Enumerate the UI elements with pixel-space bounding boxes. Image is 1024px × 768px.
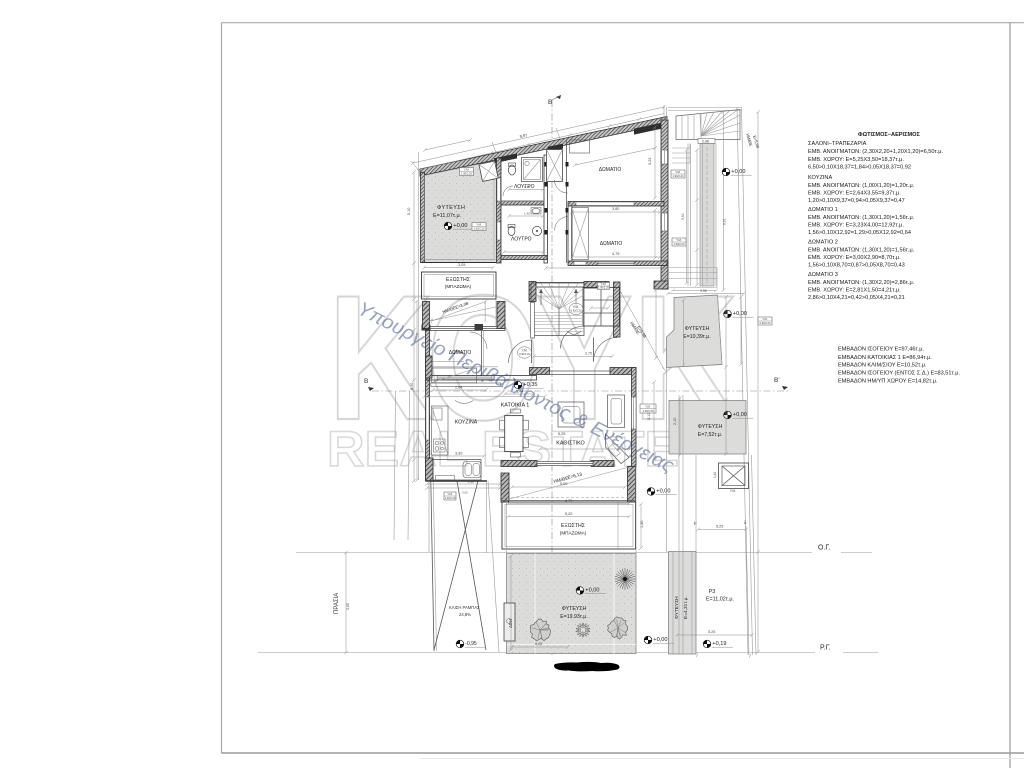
svg-text:Υ.Μ.: Υ.Μ. [730, 489, 736, 493]
svg-text:5,00: 5,00 [560, 482, 567, 486]
svg-text:Ρ3: Ρ3 [709, 589, 716, 595]
svg-text:1,44: 1,44 [516, 390, 523, 394]
svg-text:ΔΩΜΑΤΙΟ 1: ΔΩΜΑΤΙΟ 1 [808, 207, 838, 213]
svg-text:Β': Β' [774, 377, 780, 384]
svg-text:ΔΩΜΑΤΙΟ 3: ΔΩΜΑΤΙΟ 3 [808, 272, 838, 278]
svg-text:8,61: 8,61 [723, 218, 727, 225]
svg-text:1.90/2.20: 1.90/2.20 [461, 171, 472, 175]
svg-text:ΚΛΙΣΗ ΡΑΜΠΑΣ: ΚΛΙΣΗ ΡΑΜΠΑΣ [449, 605, 480, 610]
svg-text:ΔΩΜΑΤΙΟ: ΔΩΜΑΤΙΟ [449, 350, 472, 356]
svg-text:Υ.Μ.: Υ.Μ. [447, 492, 453, 496]
svg-text:ΦΥΤΕΥΣΗ: ΦΥΤΕΥΣΗ [698, 424, 723, 430]
svg-text:ΕΜΒΑΔΟΝ ΗΜ/ΥΠ ΧΩΡΟΥ Ε=14,82τ.μ: ΕΜΒΑΔΟΝ ΗΜ/ΥΠ ΧΩΡΟΥ Ε=14,82τ.μ. [838, 379, 938, 385]
svg-text:+0,00: +0,00 [656, 489, 670, 495]
svg-text:ΚΟΥΖΙΝΑ: ΚΟΥΖΙΝΑ [455, 420, 478, 426]
svg-text:ΕΜΒ. ΧΩΡΟΥ: Ε=5,25Χ3,50=18,37τ: ΕΜΒ. ΧΩΡΟΥ: Ε=5,25Χ3,50=18,37τ.μ. [808, 157, 904, 163]
svg-text:ΣΑΛΟΝΙ−ΤΡΑΠΕΖΑΡΙΑ: ΣΑΛΟΝΙ−ΤΡΑΠΕΖΑΡΙΑ [808, 141, 867, 147]
svg-text:ΕΜΒ. ΧΩΡΟΥ: Ε=3,00Χ2,90=8,70τ.: ΕΜΒ. ΧΩΡΟΥ: Ε=3,00Χ2,90=8,70τ.μ. [808, 255, 901, 261]
svg-text:3,30: 3,30 [455, 452, 462, 456]
svg-text:ΕΜΒ. ΧΩΡΟΥ: Ε=2,64Χ3,55=9,37τ.: ΕΜΒ. ΧΩΡΟΥ: Ε=2,64Χ3,55=9,37τ.μ. [808, 191, 901, 197]
svg-text:Υ.Μ.: Υ.Μ. [573, 305, 579, 309]
svg-text:ΕΜΒΑΔΟΝ ΙΣΟΓΕΙΟΥ Ε=97,46τ.μ.: ΕΜΒΑΔΟΝ ΙΣΟΓΕΙΟΥ Ε=97,46τ.μ. [838, 347, 924, 353]
svg-text:ΔΩΜΑΤΙΟ: ΔΩΜΑΤΙΟ [600, 241, 623, 247]
svg-text:3,98: 3,98 [700, 289, 707, 293]
svg-text:ΕΜΒ. ΧΩΡΟΥ: Ε=3,23Χ4,00=12,92τ: ΕΜΒ. ΧΩΡΟΥ: Ε=3,23Χ4,00=12,92τ.μ. [808, 223, 904, 229]
svg-text:3,12: 3,12 [647, 413, 651, 420]
svg-text:1.90/2.20: 1.90/2.20 [474, 226, 485, 230]
svg-text:-0,95: -0,95 [465, 641, 477, 647]
svg-text:Ρ.Γ.: Ρ.Γ. [820, 645, 831, 652]
svg-text:Υ.Μ.: Υ.Μ. [521, 349, 527, 353]
svg-text:6,50>0,10Χ18,37=1,84>0,05Χ18,3: 6,50>0,10Χ18,37=1,84>0,05Χ18,37=0,92 [808, 165, 911, 171]
svg-text:1,45: 1,45 [524, 212, 530, 216]
svg-text:ΠΡΑΣΙΑ: ΠΡΑΣΙΑ [334, 593, 340, 614]
svg-text:3,05: 3,05 [458, 263, 465, 267]
svg-text:2,10: 2,10 [673, 418, 677, 425]
svg-text:24,8%: 24,8% [459, 612, 471, 617]
svg-text:ΦΥΤΕΥΣΗ: ΦΥΤΕΥΣΗ [437, 205, 465, 211]
svg-text:0.90/2.20: 0.90/2.20 [571, 309, 582, 313]
svg-text:ΕΞΩΣΤΗΣ: ΕΞΩΣΤΗΣ [561, 523, 585, 529]
svg-text:Υ.Μ.: Υ.Μ. [675, 170, 681, 174]
svg-text:3,23: 3,23 [648, 158, 652, 165]
svg-text:ΕΜΒ. ΑΝΟΙΓΜΑΤΩΝ: (1,00Χ1,20)=1: ΕΜΒ. ΑΝΟΙΓΜΑΤΩΝ: (1,00Χ1,20)=1,20τ.μ. [808, 183, 915, 189]
svg-text:2.30/2.20: 2.30/2.20 [643, 409, 654, 413]
svg-text:ΛΟΥΤΡΟ: ΛΟΥΤΡΟ [511, 237, 532, 243]
svg-text:ΕΜΒΑΔΟΝ ΚΛΙΜ/ΣΙΟΥ Ε=10,52τ.μ.: ΕΜΒΑΔΟΝ ΚΛΙΜ/ΣΙΟΥ Ε=10,52τ.μ. [838, 363, 927, 369]
svg-text:ΕΜΒΑΔΟΝ ΚΑΤΟΙΚΙΑΣ 1 Ε=86,94τ.μ: ΕΜΒΑΔΟΝ ΚΑΤΟΙΚΙΑΣ 1 Ε=86,94τ.μ. [838, 355, 932, 361]
svg-text:4,75: 4,75 [565, 499, 572, 503]
svg-text:2,96: 2,96 [702, 140, 709, 144]
svg-text:ΦΩΤΙΣΜΟΣ−ΑΕΡΙΣΜΟΣ: ΦΩΤΙΣΜΟΣ−ΑΕΡΙΣΜΟΣ [858, 132, 920, 138]
svg-text:1.90/2.20: 1.90/2.20 [674, 242, 685, 246]
svg-text:1,56>0,10Χ8,70=0,87>0,05Χ8,70=: 1,56>0,10Χ8,70=0,87>0,05Χ8,70=0,43 [808, 263, 905, 269]
svg-text:2,86>0,10Χ4,21=0,42>0,05Χ4,21=: 2,86>0,10Χ4,21=0,42>0,05Χ4,21=0,21 [808, 295, 905, 301]
svg-text:0.90/2.20: 0.90/2.20 [519, 352, 530, 356]
svg-text:1.90/2.20: 1.90/2.20 [673, 174, 684, 178]
svg-text:ΕΜΒΑΔΟΝ ΙΣΟΓΕΙΟΥ (ΕΝΤΟΣ Σ.Δ.): ΕΜΒΑΔΟΝ ΙΣΟΓΕΙΟΥ (ΕΝΤΟΣ Σ.Δ.) Ε=83,51τ.μ… [838, 371, 961, 377]
svg-text:5,05: 5,05 [535, 642, 542, 646]
svg-text:3,75: 3,75 [585, 352, 592, 356]
svg-text:Υ.Μ.: Υ.Μ. [762, 317, 768, 321]
svg-text:ΔΩΜΑΤΙΟ: ΔΩΜΑΤΙΟ [599, 167, 622, 173]
svg-text:(ΜΠΑΖΩΜΑ): (ΜΠΑΖΩΜΑ) [560, 531, 587, 536]
svg-text:1,20>0,10Χ9,37=0,94>0,05Χ9,37=: 1,20>0,10Χ9,37=0,94>0,05Χ9,37=0,47 [808, 198, 905, 204]
svg-text:ΕΜΒ. ΧΩΡΟΥ: Ε=2,81Χ1,50=4,21τ.: ΕΜΒ. ΧΩΡΟΥ: Ε=2,81Χ1,50=4,21τ.μ. [808, 288, 901, 294]
svg-text:ΕΞΩΣΤΗΣ: ΕΞΩΣΤΗΣ [446, 277, 470, 283]
svg-text:Ο.Γ.: Ο.Γ. [818, 545, 830, 552]
svg-text:+0,00: +0,00 [733, 311, 747, 317]
svg-text:ΔΩΜΑΤΙΟ 2: ΔΩΜΑΤΙΟ 2 [808, 240, 838, 246]
svg-text:Υ.Μ.: Υ.Μ. [645, 405, 651, 409]
svg-text:1.20/2.20: 1.20/2.20 [445, 496, 456, 500]
svg-text:+0,00: +0,00 [733, 412, 747, 418]
svg-text:5,60: 5,60 [681, 213, 685, 220]
svg-text:2,64: 2,64 [455, 386, 462, 390]
svg-text:ΕΜΒ. ΑΝΟΙΓΜΑΤΩΝ: (1,30Χ2,20)=2: ΕΜΒ. ΑΝΟΙΓΜΑΤΩΝ: (1,30Χ2,20)=2,86τ.μ. [808, 280, 915, 286]
svg-text:+0,35: +0,35 [523, 382, 537, 388]
svg-text:ΚΑΘΙΣΤΙΚΟ: ΚΑΘΙΣΤΙΚΟ [556, 441, 585, 447]
svg-text:1.90/2.20: 1.90/2.20 [598, 285, 609, 289]
svg-text:ΚΑΤΟΙΚΙΑ 1: ΚΑΤΟΙΚΙΑ 1 [501, 403, 530, 409]
svg-text:ΕΜΒ. ΑΝΟΙΓΜΑΤΩΝ: (1,30Χ1,20)=1: ΕΜΒ. ΑΝΟΙΓΜΑΤΩΝ: (1,30Χ1,20)=1,56τ.μ. [808, 215, 915, 221]
svg-text:+0,00: +0,00 [453, 223, 467, 229]
svg-text:0.90/2.20: 0.90/2.20 [760, 321, 771, 325]
svg-text:1,56>0,10Χ12,92=1,29>0,05Χ12,9: 1,56>0,10Χ12,92=1,29>0,05Χ12,92=0,64 [808, 230, 911, 236]
svg-text:3,05: 3,05 [462, 491, 468, 495]
svg-text:ΛΟΥΤΡΟ: ΛΟΥΤΡΟ [514, 184, 535, 190]
svg-text:5,25: 5,25 [708, 630, 715, 634]
svg-text:ΦΥΤΕΥΣΗ: ΦΥΤΕΥΣΗ [685, 326, 710, 332]
svg-text:5,25: 5,25 [716, 525, 723, 529]
svg-text:+0,00: +0,00 [585, 588, 599, 594]
svg-text:Ε=19,93τ.μ.: Ε=19,93τ.μ. [560, 614, 587, 620]
svg-text:+0,19: +0,19 [712, 641, 726, 647]
svg-text:1,30: 1,30 [640, 521, 644, 528]
svg-text:ΚΟΥΖΙΝΑ: ΚΟΥΖΙΝΑ [808, 175, 832, 181]
svg-text:8,10: 8,10 [410, 383, 414, 390]
svg-text:Ε=4,31τ.μ.: Ε=4,31τ.μ. [683, 596, 689, 619]
svg-text:Υ.Μ.: Υ.Μ. [476, 223, 482, 227]
svg-text:Β: Β [364, 378, 368, 385]
svg-text:(ΜΠΑΖΩΜΑ): (ΜΠΑΖΩΜΑ) [445, 284, 472, 289]
svg-text:Ε=7,52τ.μ.: Ε=7,52τ.μ. [698, 432, 723, 438]
svg-text:ΕΜΒ. ΑΝΟΙΓΜΑΤΩΝ: (2,30Χ2,20+1,: ΕΜΒ. ΑΝΟΙΓΜΑΤΩΝ: (2,30Χ2,20+1,20Χ1,20)=6… [808, 149, 943, 155]
svg-text:Β: Β [548, 99, 552, 106]
svg-text:5,10: 5,10 [407, 208, 411, 215]
svg-text:ΕΜΒ. ΑΝΟΙΓΜΑΤΩΝ: (1,30Χ1,20)=1: ΕΜΒ. ΑΝΟΙΓΜΑΤΩΝ: (1,30Χ1,20)=1,56τ.μ. [808, 248, 915, 254]
svg-text:4,75: 4,75 [612, 252, 619, 256]
svg-text:5,20: 5,20 [565, 512, 572, 516]
svg-text:ΦΥΤΕΥΣΗ: ΦΥΤΕΥΣΗ [562, 606, 587, 612]
svg-text:+0,00: +0,00 [731, 169, 745, 175]
svg-text:Ε=11,07τ.μ.: Ε=11,07τ.μ. [433, 213, 461, 219]
svg-text:+0,00: +0,00 [653, 637, 667, 643]
svg-text:μ: μ [694, 520, 697, 525]
svg-text:5,25: 5,25 [558, 432, 565, 436]
svg-text:Ε=10,39τ.μ.: Ε=10,39τ.μ. [683, 334, 710, 340]
svg-text:1,40: 1,40 [713, 472, 717, 478]
svg-text:Ε=11,02τ.μ.: Ε=11,02τ.μ. [706, 597, 734, 603]
svg-text:4,00: 4,00 [346, 603, 350, 610]
svg-text:Υ.Μ.: Υ.Μ. [676, 238, 682, 242]
svg-text:Υ.Μ.: Υ.Μ. [464, 168, 470, 172]
svg-text:3,60: 3,60 [612, 207, 619, 211]
